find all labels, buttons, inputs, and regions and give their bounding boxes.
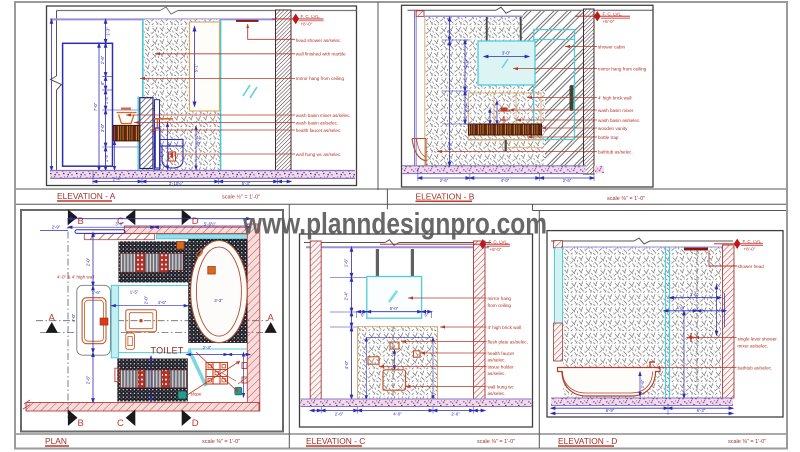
svg-text:1'-6": 1'-6" — [640, 379, 645, 388]
svg-text:4'-0": 4'-0" — [393, 412, 402, 417]
svg-text:6'-3": 6'-3" — [697, 408, 706, 413]
svg-text:2'-6": 2'-6" — [440, 178, 449, 183]
svg-text:www.planndesignpro.com: www.planndesignpro.com — [242, 208, 547, 241]
svg-text:4'-6": 4'-6" — [158, 300, 167, 305]
svg-text:+8'-0": +8'-0" — [301, 22, 313, 27]
svg-text:5'-1": 5'-1" — [194, 63, 199, 72]
svg-text:shower cabin: shower cabin — [598, 44, 626, 49]
svg-text:bathtub as/selec.: bathtub as/selec. — [738, 365, 773, 370]
svg-text:slope: slope — [191, 392, 202, 397]
svg-text:6": 6" — [361, 313, 365, 318]
svg-text:5'-3": 5'-3" — [242, 181, 251, 186]
svg-text:3'-10½": 3'-10½" — [169, 181, 184, 186]
svg-text:6": 6" — [425, 313, 429, 318]
svg-text:F. C. LVL.: F. C. LVL. — [743, 239, 763, 244]
svg-text:mixer as/selec.: mixer as/selec. — [738, 343, 769, 348]
svg-text:+8'-0": +8'-0" — [603, 19, 615, 24]
svg-text:wash basin as/selec.: wash basin as/selec. — [296, 120, 338, 125]
svg-text:F. C. LVL.: F. C. LVL. — [603, 11, 623, 16]
svg-text:3'-4": 3'-4" — [465, 59, 470, 68]
svg-text:2'-6": 2'-6" — [100, 55, 105, 64]
svg-text:ELEVATION - A: ELEVATION - A — [57, 191, 116, 201]
svg-text:2'-9": 2'-9" — [52, 225, 61, 230]
svg-text:2'-0": 2'-0" — [86, 257, 91, 266]
svg-text:1'-9": 1'-9" — [677, 305, 686, 310]
svg-text:2'-0": 2'-0" — [144, 295, 149, 304]
svg-text:5'-0": 5'-0" — [390, 306, 399, 311]
svg-text:4' high brick wall: 4' high brick wall — [488, 325, 522, 330]
svg-text:2'-8": 2'-8" — [447, 141, 452, 150]
svg-text:4'-0": 4'-0" — [344, 360, 349, 369]
svg-text:bottle trap: bottle trap — [598, 135, 619, 140]
svg-text:PLAN: PLAN — [45, 436, 67, 446]
svg-text:1'-6": 1'-6" — [343, 258, 348, 267]
svg-text:3'-0": 3'-0" — [115, 222, 124, 227]
svg-text:from ceiling: from ceiling — [488, 303, 512, 308]
svg-text:wall hung wc: wall hung wc — [488, 384, 515, 389]
svg-text:health faucet: health faucet — [488, 351, 515, 356]
svg-text:scale ⅜" = 1'-0": scale ⅜" = 1'-0" — [728, 439, 766, 445]
svg-text:1'-5": 1'-5" — [130, 290, 139, 295]
svg-text:1'-3": 1'-3" — [447, 29, 452, 38]
svg-text:4'-0": 4'-0" — [501, 178, 510, 183]
svg-text:as/selec.: as/selec. — [488, 391, 506, 396]
svg-text:F. C. LVL.: F. C. LVL. — [301, 14, 321, 19]
svg-text:3'-2": 3'-2" — [196, 135, 201, 144]
svg-text:1'-8": 1'-8" — [104, 95, 109, 104]
svg-text:scale ⅜" = 1'-0": scale ⅜" = 1'-0" — [607, 196, 645, 202]
svg-text:wooden vanity: wooden vanity — [598, 126, 628, 131]
svg-text:1'-6": 1'-6" — [167, 141, 172, 150]
svg-text:shower head: shower head — [738, 264, 765, 269]
svg-text:TOILET: TOILET — [151, 346, 184, 356]
svg-text:1'-3": 1'-3" — [106, 27, 111, 36]
svg-text:B: B — [78, 418, 84, 429]
svg-text:3'-6": 3'-6" — [690, 292, 699, 297]
svg-text:scale ⅜" = 1'-0": scale ⅜" = 1'-0" — [202, 439, 240, 445]
svg-text:C: C — [117, 418, 124, 429]
svg-text:bathtub as/selec.: bathtub as/selec. — [598, 149, 633, 154]
svg-text:scale ⅜" = 1'-0": scale ⅜" = 1'-0" — [477, 439, 515, 445]
svg-text:6'-9": 6'-9" — [606, 408, 615, 413]
svg-text:A: A — [268, 313, 275, 324]
svg-text:single lever shower: single lever shower — [738, 336, 778, 341]
svg-text:4'-0": 4'-0" — [71, 313, 76, 322]
svg-text:ELEVATION - C: ELEVATION - C — [306, 436, 365, 446]
svg-text:2'-6": 2'-6" — [335, 412, 344, 417]
svg-text:flush plate as/selec.: flush plate as/selec. — [488, 339, 528, 344]
svg-text:3'-3": 3'-3" — [214, 298, 223, 303]
svg-text:scale ½" = 1'-0": scale ½" = 1'-0" — [222, 194, 260, 201]
svg-text:wall hung wc as/selec.: wall hung wc as/selec. — [296, 152, 342, 157]
svg-text:tissue holder: tissue holder — [488, 364, 515, 369]
svg-text:3'-0": 3'-0" — [502, 51, 511, 56]
svg-text:3'-0": 3'-0" — [100, 123, 105, 132]
svg-text:health faucet as/selec.: health faucet as/selec. — [296, 128, 342, 133]
svg-text:5'-6½": 5'-6½" — [204, 222, 217, 227]
svg-text:2'-4": 2'-4" — [343, 291, 348, 300]
svg-text:7'-0": 7'-0" — [93, 102, 98, 111]
svg-text:2'-3": 2'-3" — [203, 345, 212, 350]
svg-text:mirror hang from ceiling: mirror hang from ceiling — [296, 76, 345, 81]
svg-text:2'-4": 2'-4" — [113, 176, 122, 181]
svg-text:2'-6": 2'-6" — [563, 178, 572, 183]
svg-text:B: B — [78, 216, 84, 227]
svg-text:mirror hang from ceiling: mirror hang from ceiling — [598, 66, 647, 71]
svg-text:mirror hang: mirror hang — [488, 296, 512, 301]
svg-text:2'-6": 2'-6" — [86, 375, 91, 384]
svg-text:D: D — [192, 418, 199, 429]
svg-text:wash basin as/selec.: wash basin as/selec. — [598, 118, 640, 123]
svg-text:as/selec.: as/selec. — [488, 357, 506, 362]
svg-text:2'-6": 2'-6" — [451, 412, 460, 417]
svg-text:as/selec.: as/selec. — [488, 371, 506, 376]
svg-text:A: A — [49, 313, 56, 324]
svg-text:head shower as/selec.: head shower as/selec. — [296, 38, 342, 43]
svg-text:1'-6": 1'-6" — [92, 290, 101, 295]
svg-text:4' high brick wall: 4' high brick wall — [598, 95, 632, 100]
svg-text:wash basin mixer as/selec.: wash basin mixer as/selec. — [296, 113, 351, 118]
svg-text:+8'-0": +8'-0" — [490, 247, 502, 252]
svg-text:wash basin mixer: wash basin mixer — [598, 108, 634, 113]
svg-text:ELEVATION - D: ELEVATION - D — [558, 436, 617, 446]
svg-text:2'-2": 2'-2" — [465, 103, 470, 112]
svg-text:4'-0" & 4' high wall: 4'-0" & 4' high wall — [57, 275, 94, 280]
svg-text:D: D — [192, 216, 199, 227]
svg-text:1'-5": 1'-5" — [104, 153, 109, 162]
svg-text:+8'-0": +8'-0" — [744, 247, 756, 252]
svg-text:6": 6" — [100, 81, 105, 85]
svg-text:ELEVATION - B: ELEVATION - B — [416, 192, 475, 202]
svg-text:wall finished with marble: wall finished with marble — [296, 52, 346, 57]
